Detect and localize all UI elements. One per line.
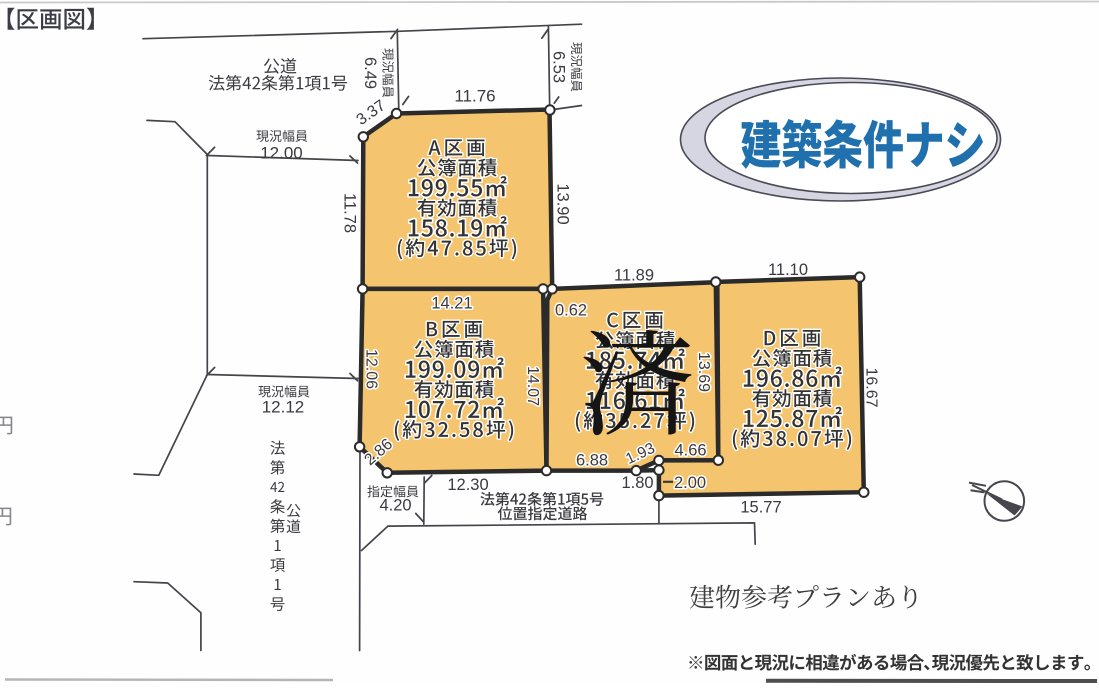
svg-text:14.07: 14.07 — [524, 366, 541, 406]
svg-text:12.00: 12.00 — [260, 144, 303, 163]
svg-text:11.89: 11.89 — [614, 266, 654, 284]
svg-text:6.53: 6.53 — [550, 51, 568, 83]
svg-text:2.00: 2.00 — [674, 474, 706, 492]
svg-text:4.20: 4.20 — [379, 496, 411, 514]
svg-text:6.88: 6.88 — [576, 451, 608, 469]
svg-text:11.10: 11.10 — [768, 261, 808, 279]
svg-text:15.77: 15.77 — [740, 498, 781, 516]
svg-text:14.21: 14.21 — [431, 294, 472, 312]
svg-text:12.12: 12.12 — [262, 398, 305, 417]
svg-text:16.67: 16.67 — [862, 367, 879, 407]
svg-text:13.90: 13.90 — [554, 183, 572, 224]
svg-text:11.76: 11.76 — [454, 87, 495, 106]
svg-text:1.80: 1.80 — [621, 474, 653, 492]
svg-text:0.62: 0.62 — [555, 301, 587, 319]
svg-text:12.06: 12.06 — [362, 349, 379, 389]
svg-text:4.66: 4.66 — [674, 441, 706, 459]
svg-text:12.30: 12.30 — [447, 476, 488, 494]
svg-text:6.49: 6.49 — [361, 57, 379, 89]
svg-text:11.78: 11.78 — [341, 193, 359, 233]
svg-text:13.69: 13.69 — [695, 352, 712, 392]
